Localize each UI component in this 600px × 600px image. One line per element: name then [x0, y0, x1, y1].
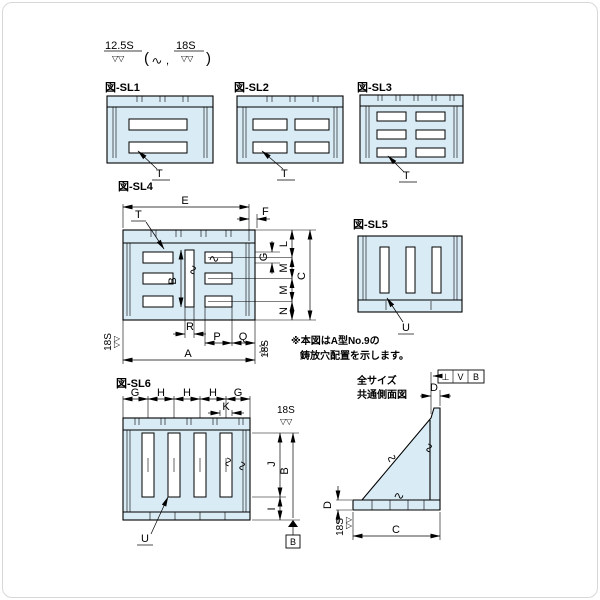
sl6-k-label: K [222, 401, 230, 413]
triangles-icon: ▽▽ [112, 335, 121, 348]
sl4-dim-f: F [237, 206, 270, 228]
sl6-finish: 18S ▽▽ [277, 405, 295, 426]
finish-rough-triangles-icon: ▽▽ [112, 54, 125, 63]
sl4-a-label: A [184, 348, 192, 360]
side-view-title-2: 共通側面図 [357, 388, 407, 401]
fcf-datum-label: B [473, 372, 479, 382]
figure-sl5: 図-SL5 U [353, 217, 462, 334]
surface-finish-note: 12.5S ▽▽ ( , 18S ▽▽ ) [104, 40, 211, 67]
sl6-h3-label: H [209, 387, 217, 399]
finish-fine-value: 18S [176, 40, 196, 52]
sl4-n-label: N [278, 307, 290, 315]
sl4-g-label: G [258, 253, 270, 262]
figure-sl5-label: 図-SL5 [353, 217, 388, 231]
sl4-f-label: F [262, 206, 269, 218]
note-line-2: 鋳放穴配置を示します。 [299, 349, 409, 362]
triangles-icon: ▽▽ [280, 417, 293, 426]
sl3-slot [416, 130, 445, 139]
sl4-t-label: T [135, 209, 142, 221]
sl2-t-label: T [281, 168, 288, 180]
sl4-b-label: B [167, 277, 179, 284]
figure-sl2-label: 図-SL2 [234, 80, 269, 94]
side-finish: 18S ▽▽ [335, 516, 353, 536]
sl6-j-label: J [266, 461, 278, 467]
datum-triangle-icon [288, 520, 298, 527]
sl3-slot [416, 148, 445, 157]
sl4-finish-right: 18S ▽▽ [258, 340, 271, 358]
drawing-note: ※本図はA型No.9の 鋳放穴配置を示します。 [291, 334, 409, 362]
side-d-top-label: D [430, 382, 438, 394]
side-d-left-label: D [322, 501, 334, 509]
sl4-m1-label: M [278, 263, 290, 272]
sl3-slot [377, 130, 406, 139]
side-profile [353, 408, 440, 510]
svg-text:18S: 18S [277, 405, 295, 416]
perpendicularity-icon: ⊥ [442, 372, 450, 382]
figure-sl3: 図-SL3 T [357, 80, 463, 182]
fcf-tolerance-label: V [457, 372, 463, 382]
technical-drawing-canvas: 12.5S ▽▽ ( , 18S ▽▽ ) 図-SL1 T 図-SL2 [0, 0, 600, 600]
side-dim-c: C [353, 512, 440, 540]
sl6-h1-label: H [157, 387, 165, 399]
figure-sl4-label: 図-SL4 [118, 179, 154, 193]
sl5-u-label: U [402, 322, 410, 334]
triangles-icon: ▽▽ [258, 343, 267, 356]
catalog-drawing-page: 12.5S ▽▽ ( , 18S ▽▽ ) 図-SL1 T 図-SL2 [0, 0, 600, 600]
figure-sl1: 図-SL1 T [105, 80, 213, 180]
sl3-body [360, 95, 463, 163]
comma: , [166, 55, 169, 67]
sl6-datum-label: B [290, 537, 296, 547]
sl3-slot [377, 148, 406, 157]
sl6-dim-chain-right: J I B B [252, 433, 300, 548]
sl6-b-label: B [279, 467, 291, 474]
sl2-slot [253, 142, 287, 153]
sl2-slot [253, 119, 287, 130]
side-view: 全サイズ 共通側面図 ⊥ V B D [322, 370, 484, 540]
figure-sl3-label: 図-SL3 [357, 80, 392, 94]
sl4-l-label: L [278, 241, 290, 247]
figure-sl6: 図-SL6 G H H H G K 18S [116, 376, 300, 548]
note-line-1: ※本図はA型No.9の [291, 334, 380, 347]
sl5-slot [406, 247, 415, 293]
triangles-icon: ▽▽ [344, 516, 353, 529]
sl3-t-label: T [403, 170, 410, 182]
side-view-title-1: 全サイズ [356, 374, 397, 387]
sl4-c-label: C [296, 272, 308, 280]
sl5-slot [432, 247, 441, 293]
sl4-e-label: E [181, 195, 188, 207]
figure-sl2: 図-SL2 T [234, 80, 343, 180]
sl4-slot [143, 252, 173, 263]
sl1-t-label: T [156, 168, 163, 180]
sl1-slot [129, 119, 187, 130]
sl3-slot [377, 112, 406, 121]
paren-open: ( [144, 50, 149, 67]
machined-surface-icon [153, 59, 161, 64]
sl4-r-label: R [186, 321, 194, 333]
sl2-slot [295, 142, 329, 153]
sl6-g1-label: G [131, 387, 140, 399]
sl6-i-label: I [266, 507, 278, 510]
figure-sl4: 図-SL4 T E [103, 179, 316, 364]
sl5-slot [380, 247, 389, 293]
figure-sl1-label: 図-SL1 [105, 80, 140, 94]
sl4-m2-label: M [278, 285, 290, 294]
sl1-slot [129, 142, 187, 153]
sl4-slot [143, 296, 173, 307]
feature-control-frame: ⊥ V B [433, 370, 484, 383]
sl4-q-label: Q [239, 331, 248, 343]
sl2-slot [295, 119, 329, 130]
side-c-label: C [392, 524, 400, 536]
sl6-u-label: U [141, 533, 149, 545]
sl4-center-slot [185, 250, 194, 307]
sl4-finish-left: 18S ▽▽ [103, 333, 121, 351]
sl6-g2-label: G [234, 387, 243, 399]
sl4-p-label: P [213, 331, 220, 343]
finish-fine-triangles-icon: ▽▽ [181, 54, 194, 63]
finish-rough-value: 12.5S [105, 40, 134, 52]
sl6-h2-label: H [183, 387, 191, 399]
paren-close: ) [206, 50, 211, 67]
sl3-slot [416, 112, 445, 121]
